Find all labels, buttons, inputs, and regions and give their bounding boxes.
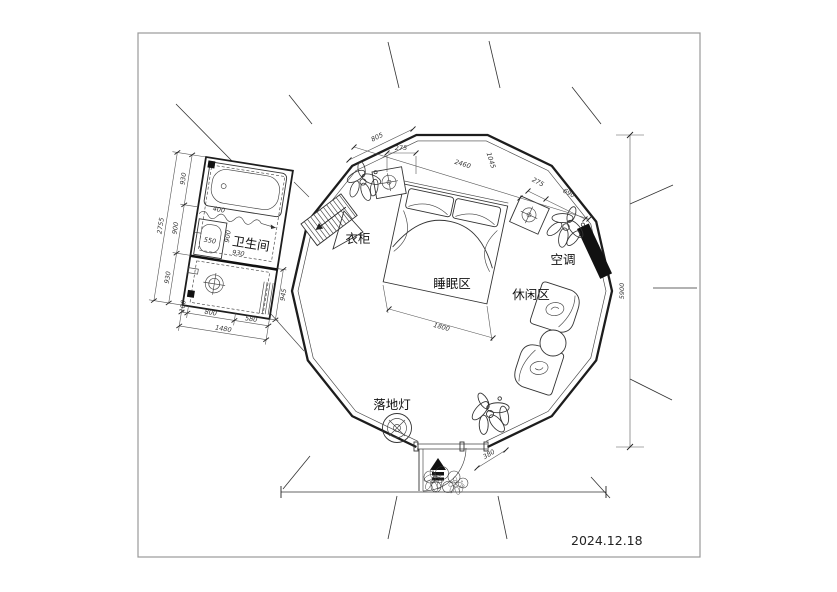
air-conditioner-label: 空调 — [550, 252, 575, 267]
floor-plan-drawing: 5900 — [0, 0, 837, 592]
wardrobe-label: 衣柜 — [345, 231, 370, 246]
dim-top-nightstand: 275 — [395, 144, 407, 152]
column — [207, 160, 215, 168]
column — [187, 290, 195, 298]
leisure-table — [540, 330, 566, 356]
drawing-date: 2024.12.18 — [571, 533, 643, 548]
floor-lamp-label: 落地灯 — [373, 397, 411, 412]
sleeping-area-label: 睡眠区 — [433, 276, 471, 291]
leisure-area-label: 休闲区 — [512, 287, 550, 302]
floor-plan-canvas: 5900 — [0, 0, 837, 592]
dim-5900: 5900 — [618, 283, 626, 300]
